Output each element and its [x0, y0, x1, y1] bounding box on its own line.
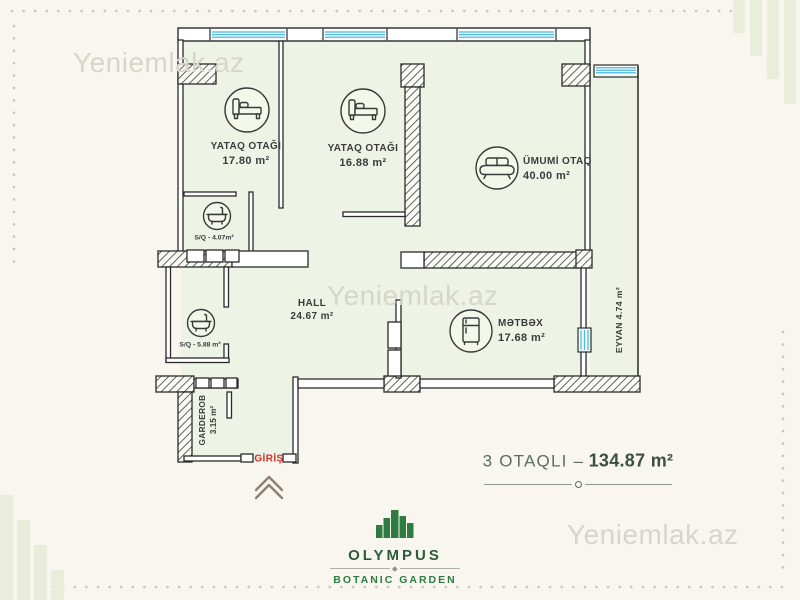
living-room-label: ÜMUMİ OTAQ 40.00 m² — [523, 156, 592, 182]
garderob-area: 3.15 m² — [209, 395, 218, 446]
entrance-chevron-icon — [256, 477, 282, 498]
sofa-icon — [476, 147, 518, 189]
diamond-icon — [393, 566, 398, 571]
summary-divider — [484, 481, 672, 488]
bathroom1-label: S/Q - 4.07m² — [194, 235, 233, 242]
brand-name: OLYMPUS — [285, 547, 505, 564]
garderob-label: GARDEROB 3.15 m² — [198, 395, 218, 446]
living-room-name: ÜMUMİ OTAQ — [523, 156, 592, 167]
divider-line — [585, 484, 673, 485]
bedroom2-label: YATAQ OTAĞI 16.88 m² — [328, 143, 399, 169]
bedroom1-label: YATAQ OTAĞI 17.80 m² — [211, 141, 282, 167]
watermark-top-left: Yeniemlak.az — [73, 47, 245, 79]
window-kitchen — [578, 328, 591, 352]
bedroom2-area: 16.88 m² — [328, 157, 399, 169]
brand-tagline: BOTANIC GARDEN — [285, 574, 505, 586]
summary-area: 134.87 m² — [589, 451, 674, 471]
hall-name: HALL — [290, 298, 333, 309]
hall-area: 24.67 m² — [290, 311, 333, 322]
bedroom1-area: 17.80 m² — [211, 155, 282, 167]
bedroom1-name: YATAQ OTAĞI — [211, 141, 282, 152]
logo-divider — [330, 567, 460, 571]
bath-icon — [204, 203, 231, 230]
bed-icon — [225, 88, 269, 132]
apartment-summary: 3 OTAQLI – 134.87 m² — [483, 451, 674, 472]
divider-line — [330, 568, 390, 569]
kitchen-label: MƏTBƏX 17.68 m² — [498, 318, 545, 344]
divider-ring — [575, 481, 582, 488]
balcony-label: EYVAN 4.74 m² — [614, 287, 624, 353]
watermark-bottom-right: Yeniemlak.az — [567, 519, 739, 551]
summary-rooms-label: 3 OTAQLI – — [483, 452, 584, 471]
building-logo-icon — [376, 508, 414, 538]
divider-line — [400, 568, 460, 569]
developer-logo: OLYMPUS BOTANIC GARDEN — [285, 508, 505, 586]
divider-line — [484, 484, 572, 485]
bed-icon — [341, 89, 385, 133]
kitchen-name: MƏTBƏX — [498, 318, 545, 329]
hall-label: HALL 24.67 m² — [290, 298, 333, 322]
bath-icon — [188, 310, 215, 337]
living-room-area: 40.00 m² — [523, 170, 592, 182]
bathroom2-label: S/Q - 5.88 m² — [179, 342, 220, 349]
entrance-label: GİRİŞ — [254, 454, 283, 465]
floorplan-page: { "watermark": "Yeniemlak.az", "plan": {… — [0, 0, 800, 600]
fridge-icon — [450, 310, 492, 352]
watermark-center: Yeniemlak.az — [327, 280, 499, 312]
kitchen-area: 17.68 m² — [498, 332, 545, 344]
garderob-name: GARDEROB — [198, 395, 207, 446]
window-balcony — [594, 65, 638, 77]
window-band-top — [178, 28, 590, 41]
bedroom2-name: YATAQ OTAĞI — [328, 143, 399, 154]
